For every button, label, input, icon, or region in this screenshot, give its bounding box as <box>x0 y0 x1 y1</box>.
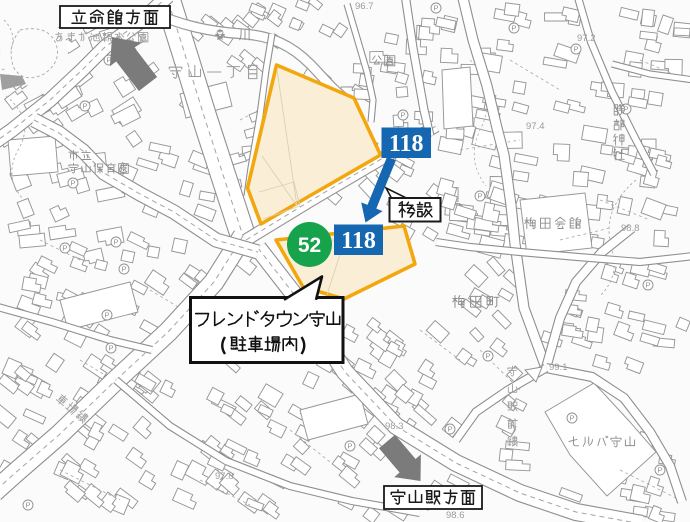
svg-text:P: P <box>70 179 75 188</box>
svg-text:118: 118 <box>389 131 424 157</box>
svg-text:96.7: 96.7 <box>355 1 374 12</box>
svg-text:P: P <box>477 192 482 201</box>
svg-text:P: P <box>400 111 405 120</box>
svg-text:99.1: 99.1 <box>549 362 568 373</box>
svg-text:P: P <box>25 501 30 510</box>
svg-text:118: 118 <box>341 228 376 254</box>
svg-text:98.6: 98.6 <box>446 510 465 521</box>
svg-text:P: P <box>447 425 452 434</box>
svg-text:P: P <box>645 281 650 290</box>
svg-text:P: P <box>569 414 574 423</box>
svg-text:P: P <box>485 352 490 361</box>
svg-text:P: P <box>433 4 438 13</box>
svg-text:98.8: 98.8 <box>621 223 640 234</box>
svg-text:P: P <box>347 442 352 451</box>
svg-text:98.3: 98.3 <box>385 421 404 432</box>
svg-text:P: P <box>113 238 118 247</box>
svg-text:97.8: 97.8 <box>215 471 234 482</box>
svg-text:P: P <box>62 244 67 253</box>
svg-text:P: P <box>121 265 126 274</box>
svg-text:P: P <box>82 102 87 111</box>
svg-text:52: 52 <box>298 234 321 257</box>
svg-text:P: P <box>511 24 516 33</box>
svg-text:97.4: 97.4 <box>526 121 545 132</box>
svg-text:P: P <box>108 344 113 353</box>
svg-text:97.2: 97.2 <box>577 33 596 44</box>
svg-text:P: P <box>657 466 662 475</box>
svg-text:P: P <box>573 45 578 54</box>
svg-text:P: P <box>104 311 109 320</box>
